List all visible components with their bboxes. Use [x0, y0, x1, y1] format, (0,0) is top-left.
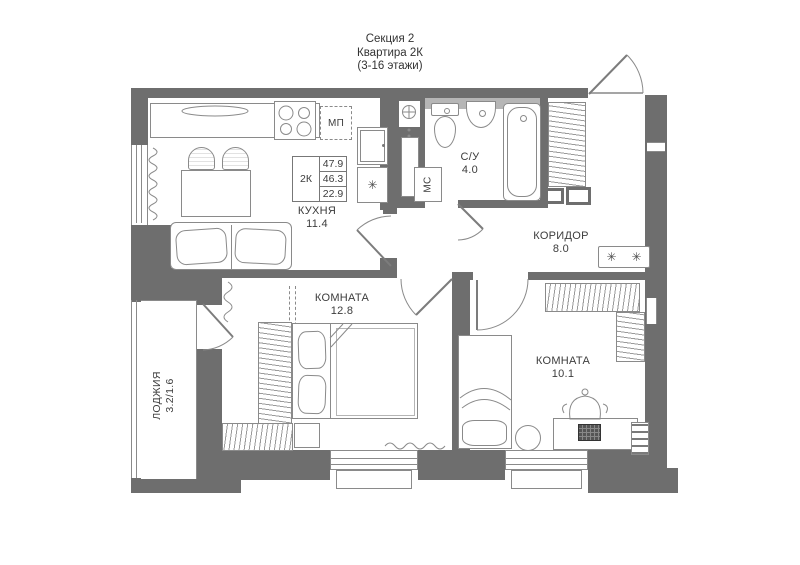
radiator-squiggle-kitchen	[149, 148, 157, 220]
stove-burners	[279, 106, 311, 136]
plan-lineart	[0, 0, 800, 565]
vent-symbol	[403, 106, 416, 138]
bedroom-second-door	[477, 279, 528, 330]
radiator-squiggle-bedroom1-bottom	[385, 443, 445, 449]
kitchen-door	[357, 216, 391, 266]
loggia-door	[203, 304, 233, 350]
bed2-blanket-fold	[460, 388, 511, 410]
desk-lamp	[563, 389, 608, 419]
bed1-blanket-fold	[330, 324, 352, 347]
kitchen-sink	[182, 106, 248, 116]
radiator-squiggle-bedroom1-left	[224, 282, 232, 322]
bedroom-main-door	[401, 279, 452, 315]
entrance-door	[589, 55, 643, 94]
floor-plan: Секция 2 Квартира 2К (3-16 этажи) МП	[0, 0, 800, 565]
bathroom-door	[458, 204, 483, 240]
